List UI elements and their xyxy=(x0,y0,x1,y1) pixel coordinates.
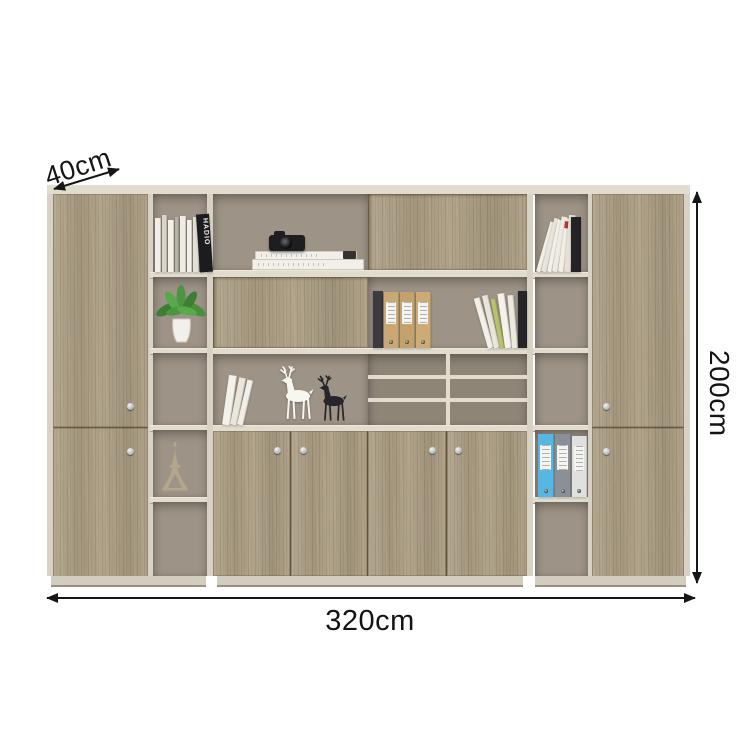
book-stack-dark-end xyxy=(343,251,356,259)
module-frame xyxy=(530,194,533,576)
door-knob xyxy=(429,447,436,454)
product-photo: HADIO xyxy=(0,0,750,750)
cubby-empty xyxy=(153,502,207,576)
eiffel-tower-figurine xyxy=(159,436,191,497)
height-dimension-arrow xyxy=(696,192,698,583)
pigeonhole-divider xyxy=(446,354,450,425)
plinth xyxy=(535,576,686,587)
sliding-door-middle xyxy=(213,277,368,348)
potted-plant xyxy=(154,279,208,347)
cubby-empty xyxy=(535,277,588,348)
plinth xyxy=(51,576,206,587)
door-knob xyxy=(455,447,462,454)
cabinet: HADIO xyxy=(47,185,690,585)
door-knob xyxy=(127,448,134,455)
left-upper-door xyxy=(53,194,148,427)
height-dimension-label: 200cm xyxy=(703,350,735,436)
cubby-empty xyxy=(153,353,207,425)
door-knob xyxy=(603,448,610,455)
pigeonhole-shelf xyxy=(368,375,527,379)
door-knob xyxy=(127,403,134,410)
door-knob xyxy=(274,447,281,454)
book-row-deer-shelf xyxy=(223,375,243,425)
sliding-door-top xyxy=(368,194,527,270)
cubby-empty xyxy=(535,353,588,425)
deer-figurine-white xyxy=(276,361,316,425)
book-row-right-top xyxy=(537,215,587,272)
binder-group-tan xyxy=(373,291,431,348)
pigeonhole-shelf xyxy=(368,398,527,402)
book-row-left-top: HADIO xyxy=(155,214,207,272)
door-knob xyxy=(603,403,610,410)
camera xyxy=(269,235,305,251)
deer-figurine-black xyxy=(315,372,349,425)
pigeonhole-compartments xyxy=(368,354,527,425)
cubby-empty xyxy=(535,502,588,576)
width-dimension-arrow xyxy=(47,597,695,599)
leaning-books xyxy=(471,291,527,348)
right-upper-door xyxy=(592,194,684,427)
door-knob xyxy=(300,447,307,454)
width-dimension-label: 320cm xyxy=(297,605,443,638)
plinth xyxy=(217,576,523,587)
binder-group-right xyxy=(538,434,587,497)
right-side-panel xyxy=(684,194,690,576)
book-stack xyxy=(252,259,364,270)
